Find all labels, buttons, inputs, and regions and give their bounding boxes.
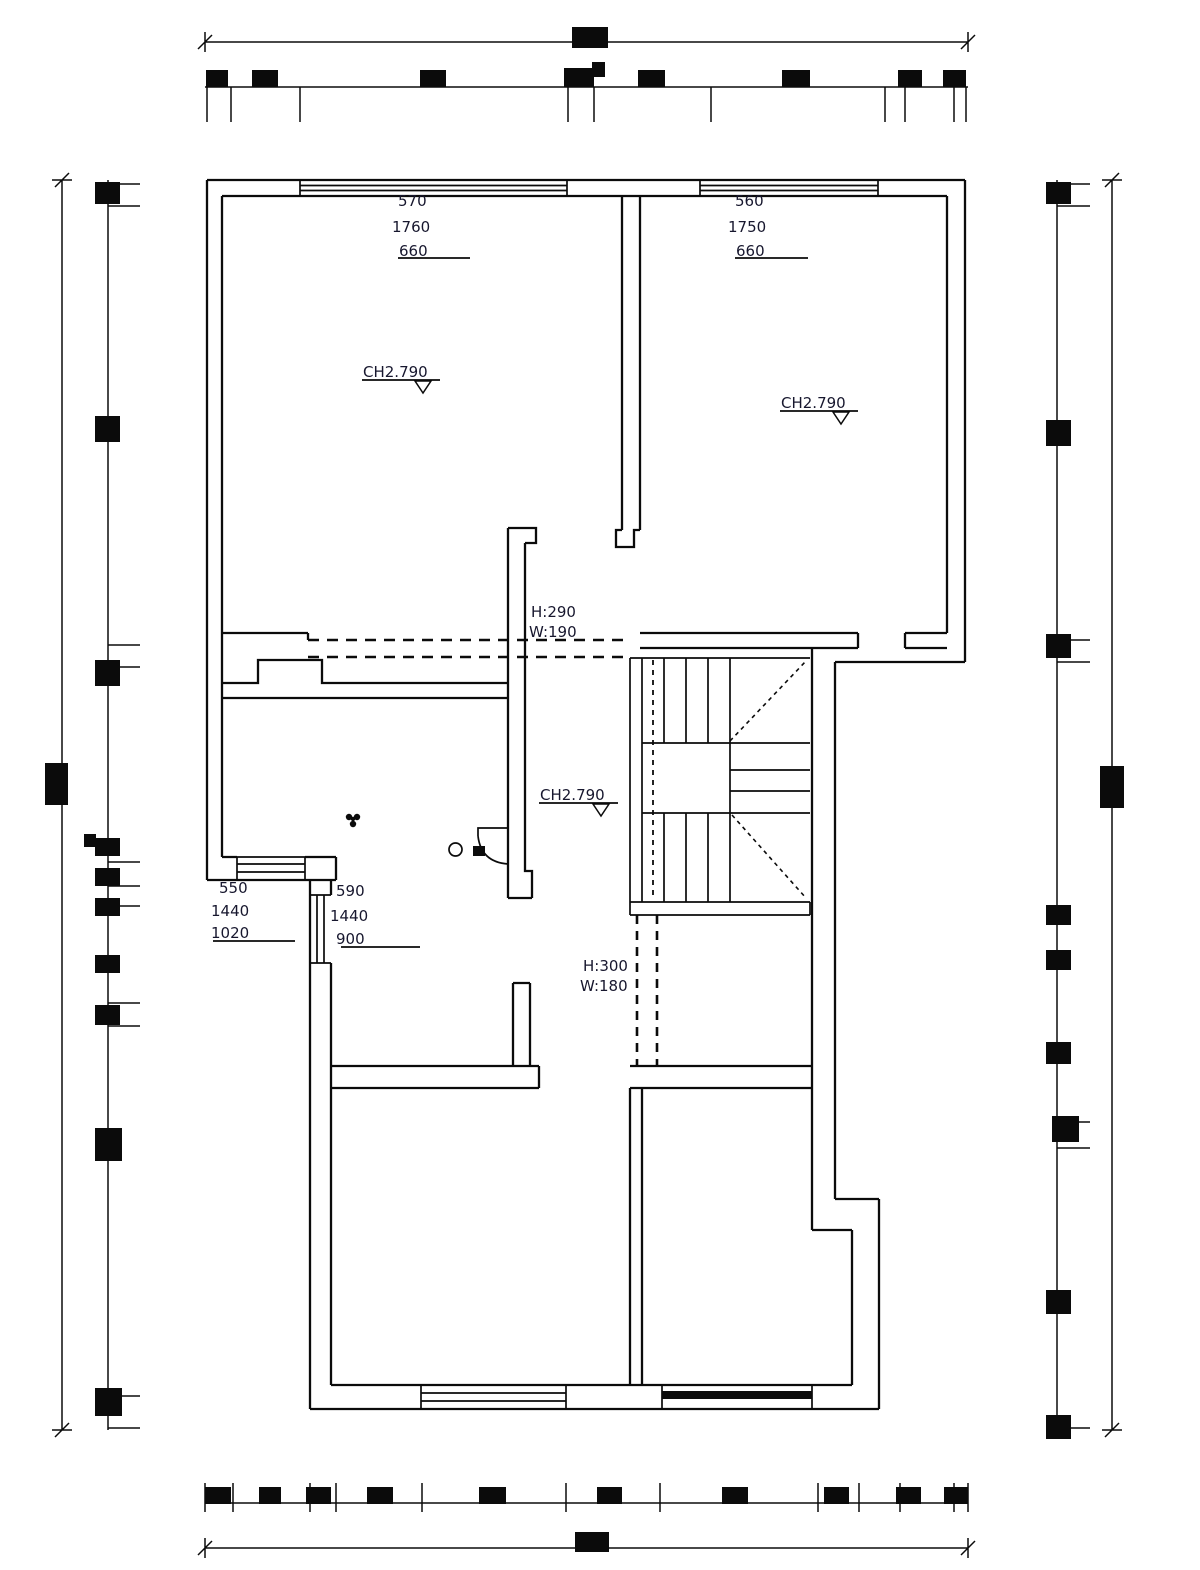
dim-blob [1100, 766, 1124, 808]
dim-line-right-detail [1057, 180, 1090, 1430]
label-bay-bottom-sill: 590 [336, 882, 365, 900]
label-win-top-right-width: 1750 [728, 218, 766, 236]
label-ceiling-top-left: CH2.790 [363, 363, 428, 381]
door-symbol [473, 828, 508, 864]
label-bay-left-width: 1440 [211, 902, 249, 920]
wall-top-right-room-bottom [640, 633, 947, 648]
label-opening-hall-h: H:290 [531, 603, 576, 621]
dim-line-left-detail [108, 180, 140, 1430]
label-ceiling-hall: CH2.790 [540, 786, 605, 804]
staircase [630, 658, 810, 915]
balcony-door-threshold [662, 1391, 812, 1399]
label-win-top-left-height: 660 [399, 242, 428, 260]
dimension-strip-bottom [198, 1483, 975, 1558]
dim-text-blobs-left [84, 182, 122, 1416]
label-opening-hall-w: W:190 [529, 623, 577, 641]
opening-hall-dashed [308, 640, 628, 657]
dim-blob [45, 763, 68, 805]
label-bay-bottom-height: 900 [336, 930, 365, 948]
stair-direction-diagonals [730, 661, 806, 898]
level-marker-top-left [415, 381, 431, 393]
label-bay-left-height: 1020 [211, 924, 249, 942]
dim-text-blobs-right [1046, 182, 1079, 1439]
label-win-top-left-sill: 570 [398, 192, 427, 210]
dim-blob [575, 1532, 609, 1552]
dimension-strip-right [1046, 173, 1124, 1439]
dim-blob [572, 27, 608, 48]
label-bay-left-sill: 550 [219, 879, 248, 897]
label-win-top-right-height: 660 [736, 242, 765, 260]
dim-text-blobs-bottom [205, 1487, 968, 1504]
stair-treads [642, 658, 810, 902]
label-opening-corridor-w: W:180 [580, 977, 628, 995]
label-ceiling-top-right: CH2.790 [781, 394, 846, 412]
opening-corridor-dashed [637, 915, 657, 1066]
annotation-texts: 570 1760 660 560 1750 660 CH2.790 CH2.79… [211, 192, 846, 995]
fixture-flower-symbol [346, 814, 360, 827]
dim-text-blobs-top [206, 62, 966, 87]
label-win-top-left-width: 1760 [392, 218, 430, 236]
floor-plan-canvas: 570 1760 660 560 1750 660 CH2.790 CH2.79… [0, 0, 1200, 1570]
level-marker-hall [593, 804, 609, 816]
label-bay-bottom-width: 1440 [330, 907, 368, 925]
label-win-top-right-sill: 560 [735, 192, 764, 210]
dim-line-top-detail [205, 87, 968, 122]
floor-plan-sheet: 570 1760 660 560 1750 660 CH2.790 CH2.79… [0, 0, 1200, 1570]
fixture-circle-symbol [449, 843, 462, 856]
dimension-strip-left [45, 173, 140, 1437]
label-opening-corridor-h: H:300 [583, 957, 628, 975]
dimension-strip-top [198, 27, 975, 122]
stair-enclosure [630, 658, 810, 915]
level-marker-top-right [833, 412, 849, 424]
